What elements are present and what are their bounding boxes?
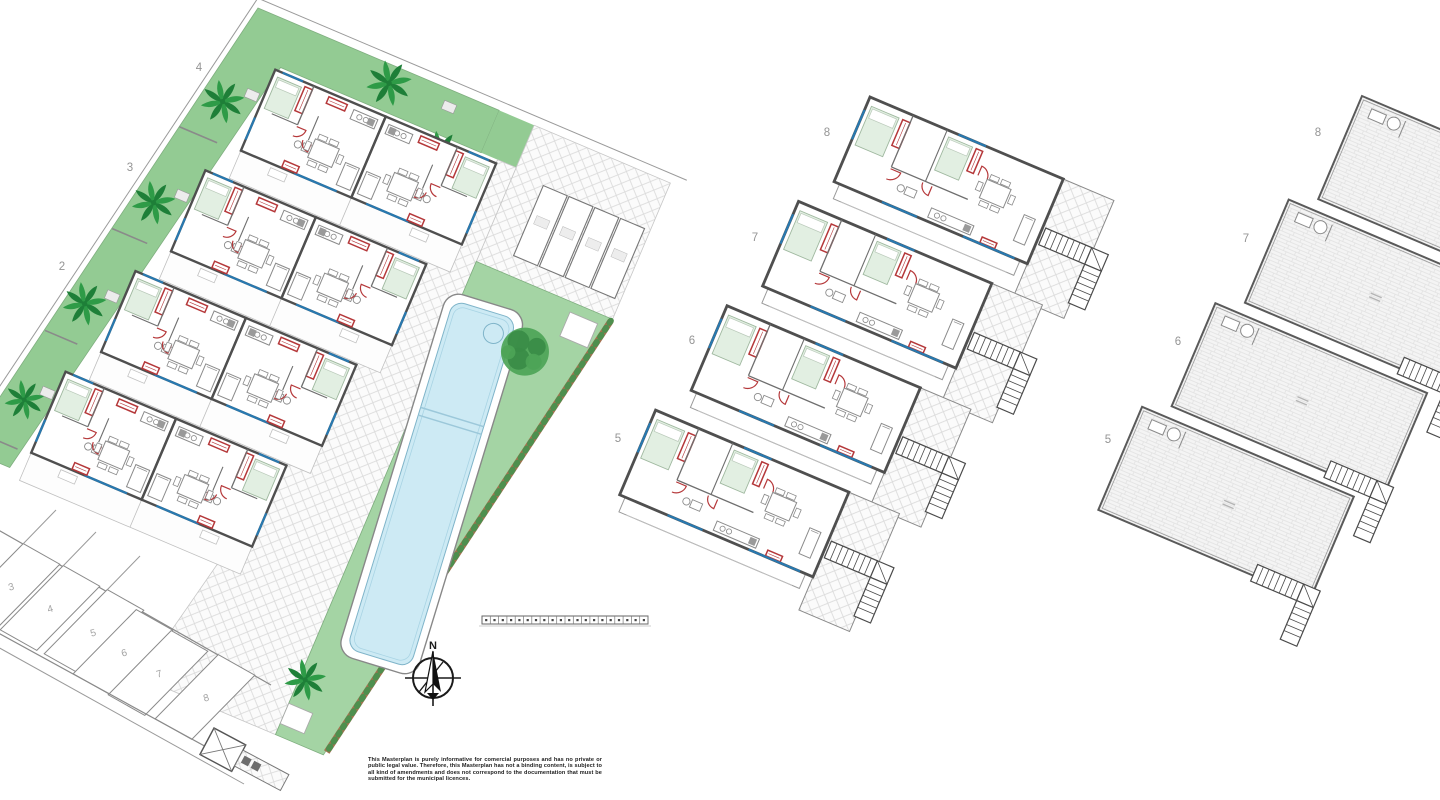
site-unit-label-3: 3 <box>127 162 133 174</box>
roof-unit-label-8: 8 <box>1315 127 1321 139</box>
scale-dot <box>552 619 554 621</box>
scale-dot <box>485 619 487 621</box>
roof-unit-label-6: 6 <box>1175 336 1181 348</box>
masterplan-canvas: 4 3 2 8 7 6 5 8 7 6 5 3 4 5 6 7 8 N This… <box>0 0 1440 800</box>
parking-divider <box>23 510 56 544</box>
masterplan-drawing: 4 3 2 8 7 6 5 8 7 6 5 3 4 5 6 7 8 N <box>0 0 1440 800</box>
scale-dot <box>635 619 637 621</box>
first-floor-rotated <box>606 68 1129 667</box>
compass-south-tip <box>427 693 439 700</box>
parking-divider <box>107 556 140 590</box>
parking-divider <box>63 532 96 566</box>
scale-dot <box>543 619 545 621</box>
roof-solarium-plan <box>1080 64 1440 678</box>
floor-unit-label-5: 5 <box>615 433 621 445</box>
roof-unit-label-5: 5 <box>1105 434 1111 446</box>
bin-store <box>200 728 292 796</box>
scale-dot <box>510 619 512 621</box>
scale-dot <box>643 619 645 621</box>
scale-dot <box>568 619 570 621</box>
bin-yard <box>235 750 289 790</box>
scale-dot <box>585 619 587 621</box>
scale-bar-graphic <box>479 616 651 626</box>
scale-dot <box>626 619 628 621</box>
roof-plan-rotated <box>1080 64 1440 678</box>
floor-unit-label-8: 8 <box>824 127 830 139</box>
scale-dot <box>535 619 537 621</box>
scale-dot <box>518 619 520 621</box>
stair-flight <box>1427 393 1440 439</box>
scale-dot <box>560 619 562 621</box>
floor-unit-label-7: 7 <box>752 232 758 244</box>
scale-dot <box>618 619 620 621</box>
compass-needle-west <box>425 651 433 692</box>
scale-dot <box>593 619 595 621</box>
scale-dot <box>576 619 578 621</box>
scale-dot <box>601 619 603 621</box>
site-unit-label-2: 2 <box>59 261 65 273</box>
scale-dot <box>610 619 612 621</box>
roof-unit-label-7: 7 <box>1243 233 1249 245</box>
compass-north-label: N <box>429 640 437 652</box>
floor-unit-label-6: 6 <box>689 335 695 347</box>
first-floor-plan <box>606 68 1129 667</box>
scale-dot <box>527 619 529 621</box>
scale-dot <box>502 619 504 621</box>
scale-bar <box>479 616 651 626</box>
scale-dot <box>493 619 495 621</box>
disclaimer-text: This Masterplan is purely informative fo… <box>368 757 602 783</box>
site-unit-label-4: 4 <box>196 62 203 74</box>
